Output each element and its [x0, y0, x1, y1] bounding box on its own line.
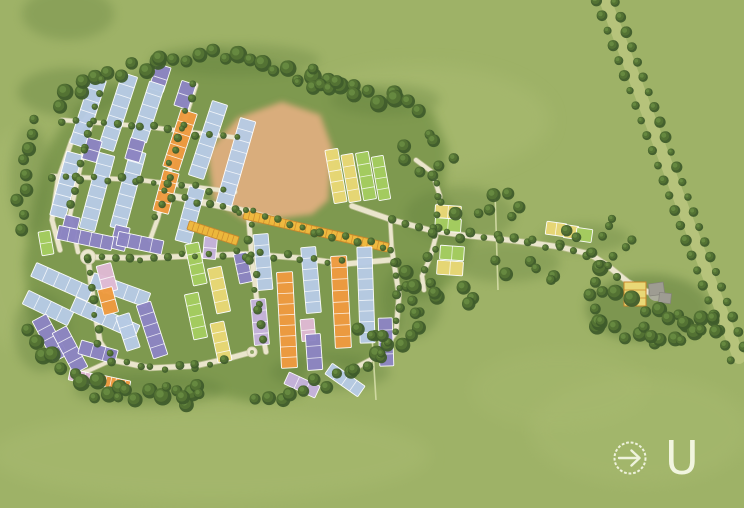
compass-label: U [665, 435, 700, 481]
north-arrow-icon [610, 438, 650, 478]
compass: U [602, 430, 732, 486]
masterplan-canvas: U [0, 0, 744, 508]
